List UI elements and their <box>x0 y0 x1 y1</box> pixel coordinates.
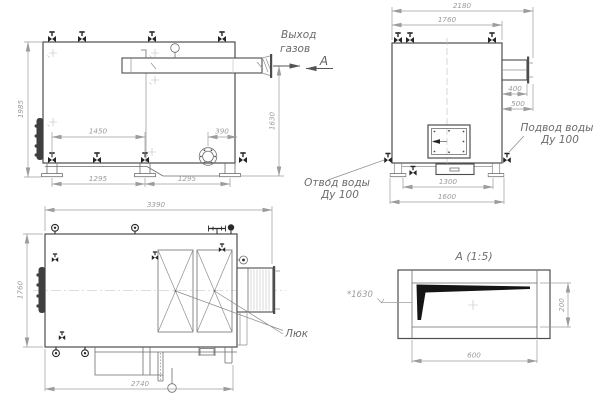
svg-text:А (1:5): А (1:5) <box>454 250 492 263</box>
drawing-canvas: 1985 1630 1450 390 1295 1295 Выход <box>0 0 600 400</box>
side-view: 1985 1630 1450 390 1295 1295 Выход <box>16 29 333 187</box>
valve-icon <box>59 331 65 340</box>
dim-200: 200 <box>540 283 571 327</box>
valve-icon <box>52 253 58 262</box>
label-gas-outlet: Выход газов <box>273 29 316 66</box>
svg-text:*1630: *1630 <box>347 290 373 300</box>
boiler-technical-drawing: 1985 1630 1450 390 1295 1295 Выход <box>0 0 600 400</box>
valve-circle-icon <box>132 224 139 234</box>
svg-text:1295: 1295 <box>178 174 197 183</box>
svg-text:Выход: Выход <box>281 29 316 41</box>
vent-flange-icon <box>209 226 226 235</box>
svg-text:газов: газов <box>280 43 310 55</box>
end-view: 2180 1760 400 500 1300 1600 <box>304 1 593 204</box>
note-1630: *1630 <box>347 290 412 303</box>
svg-text:1630: 1630 <box>268 111 277 130</box>
drain-port-icon <box>168 384 177 393</box>
hatch-handle-icon <box>432 139 440 144</box>
support-foot <box>220 163 241 177</box>
label-water-supply: Подвод воды Ду 100 <box>509 122 593 152</box>
firebox-outline <box>95 347 237 392</box>
dim-1300: 1300 <box>403 177 493 189</box>
label-water-return: Отвод воды Ду 100 <box>304 160 384 201</box>
burner-flange-icon <box>35 118 44 160</box>
valve-circle-icon <box>228 224 234 234</box>
svg-text:А: А <box>319 54 328 68</box>
dim-1760-end: 1760 <box>392 15 502 40</box>
valve-circle-icon <box>53 347 60 357</box>
hatch-door <box>428 125 470 158</box>
svg-text:Ду 100: Ду 100 <box>540 134 579 146</box>
svg-text:1295: 1295 <box>89 174 108 183</box>
svg-text:500: 500 <box>511 99 525 108</box>
valve-icon <box>218 31 226 42</box>
svg-text:1760: 1760 <box>16 280 25 299</box>
flue-duct-end <box>502 57 533 84</box>
valve-circle-icon <box>52 224 59 234</box>
dim-1295-right: 1295 <box>145 174 230 184</box>
svg-text:2740: 2740 <box>131 379 150 388</box>
water-supply-fitting-icon <box>503 153 511 163</box>
sensor-port-icon <box>171 44 180 53</box>
valve-icon <box>219 243 225 252</box>
valve-icon <box>152 251 158 260</box>
svg-text:Ду 100: Ду 100 <box>320 189 359 201</box>
valve-icon <box>394 32 402 43</box>
dim-400: 400 <box>502 84 527 96</box>
valve-icon <box>48 31 56 42</box>
dim-600: 600 <box>412 340 537 363</box>
svg-text:1450: 1450 <box>89 127 108 136</box>
valve-icon <box>406 32 414 43</box>
svg-text:Отвод воды: Отвод воды <box>304 177 370 189</box>
svg-text:3390: 3390 <box>147 200 166 209</box>
svg-text:1300: 1300 <box>439 177 458 186</box>
svg-text:600: 600 <box>467 351 481 360</box>
svg-text:390: 390 <box>215 127 229 136</box>
support-foot <box>390 163 406 177</box>
support-foot <box>488 163 504 177</box>
side-fitting-icon <box>237 256 248 264</box>
plan-view: 3390 1760 2740 Люк <box>16 200 309 392</box>
svg-text:2180: 2180 <box>453 1 472 10</box>
svg-text:1985: 1985 <box>16 99 25 118</box>
svg-text:Люк: Люк <box>284 328 309 340</box>
svg-text:400: 400 <box>508 84 522 93</box>
detail-view: А (1:5) 600 200 *1630 <box>347 250 571 363</box>
svg-text:1600: 1600 <box>438 192 457 201</box>
svg-text:1760: 1760 <box>438 15 457 24</box>
drain-valve-icon <box>239 152 247 163</box>
burner-flange-icon <box>36 267 45 313</box>
water-return-fitting-icon <box>384 153 392 163</box>
pipe-elbow-icon <box>141 50 146 58</box>
valve-icon <box>409 166 416 176</box>
svg-text:Подвод воды: Подвод воды <box>521 122 594 134</box>
valve-icon <box>78 31 86 42</box>
drain-valve-icon <box>93 152 101 163</box>
ash-drawer <box>436 164 474 175</box>
dim-390: 390 <box>208 127 237 147</box>
svg-text:200: 200 <box>557 298 566 312</box>
dim-3390: 3390 <box>45 200 272 264</box>
support-foot <box>42 163 63 177</box>
valve-icon <box>488 32 496 43</box>
dim-2180: 2180 <box>392 1 533 58</box>
section-marker-a: А <box>306 54 333 69</box>
valve-circle-icon <box>82 347 89 357</box>
flue-duct-side <box>122 58 262 73</box>
flue-duct-plan <box>237 266 280 314</box>
valve-icon <box>148 31 156 42</box>
flue-flange-icon <box>270 54 272 78</box>
